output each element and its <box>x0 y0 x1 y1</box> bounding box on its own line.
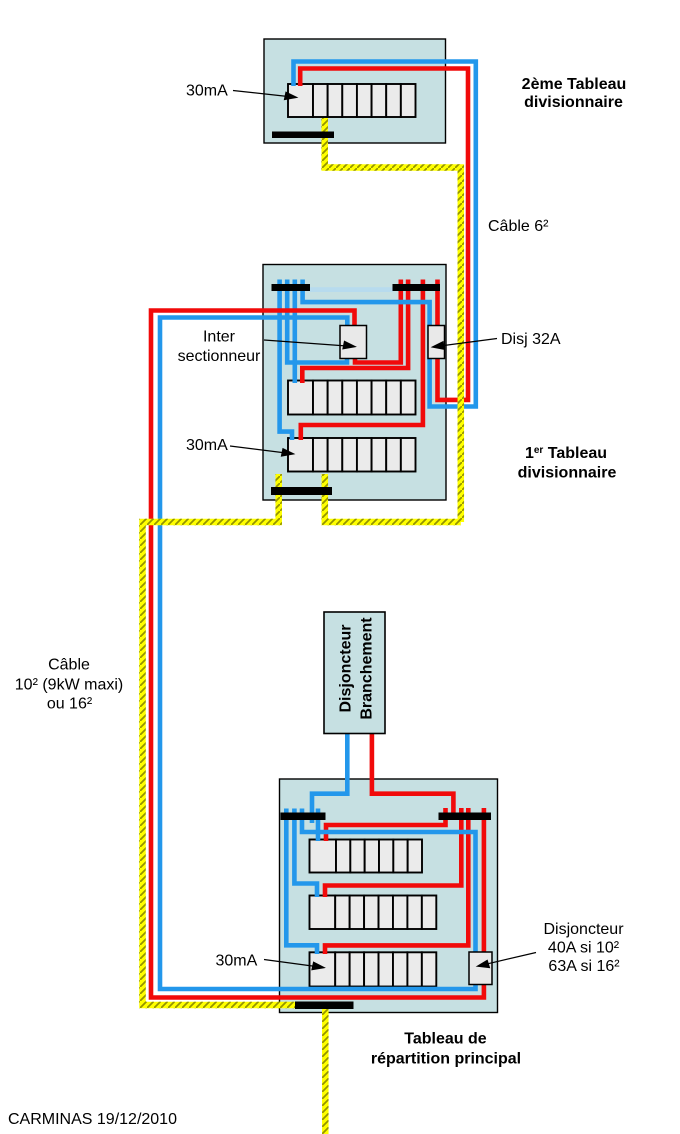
svg-text:Câble 6²: Câble 6² <box>488 218 549 235</box>
svg-text:Disjoncteur: Disjoncteur <box>543 921 624 938</box>
svg-text:ou 16²: ou 16² <box>47 696 93 713</box>
svg-text:Inter: Inter <box>203 329 236 346</box>
svg-text:répartition principal: répartition principal <box>371 1051 521 1068</box>
svg-text:divisionnaire: divisionnaire <box>524 94 623 111</box>
svg-text:Branchement: Branchement <box>359 617 376 720</box>
svg-text:Disj 32A: Disj 32A <box>501 331 561 348</box>
svg-text:10² (9kW maxi): 10² (9kW maxi) <box>15 677 123 694</box>
svg-text:Tableau de: Tableau de <box>404 1031 486 1048</box>
svg-text:Câble: Câble <box>48 657 90 674</box>
svg-text:sectionneur: sectionneur <box>178 348 261 365</box>
svg-text:2ème Tableau: 2ème Tableau <box>522 76 627 93</box>
svg-text:63A si 16²: 63A si 16² <box>548 958 620 975</box>
svg-text:divisionnaire: divisionnaire <box>518 465 617 482</box>
svg-text:30mA: 30mA <box>216 953 258 970</box>
svg-text:30mA: 30mA <box>186 83 228 100</box>
svg-text:30mA: 30mA <box>186 437 228 454</box>
svg-text:40A si 10²: 40A si 10² <box>548 940 620 957</box>
svg-text:Disjoncteur: Disjoncteur <box>338 624 355 712</box>
svg-text:CARMINAS 19/12/2010: CARMINAS 19/12/2010 <box>8 1111 177 1128</box>
